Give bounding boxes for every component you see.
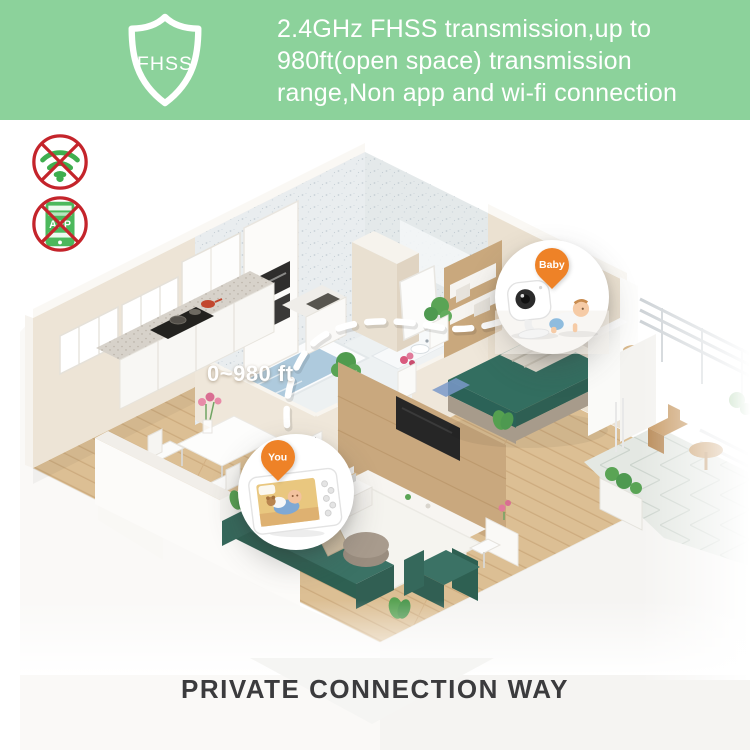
banner-line-2: 980ft(open space) transmission [277,45,677,77]
you-pin-label: You [268,451,287,463]
banner-text: 2.4GHz FHSS transmission,up to 980ft(ope… [277,13,677,109]
banner-line-3: range,Non app and wi-fi connection [277,77,677,109]
distance-label: 0~980 ft [207,361,294,387]
header-banner: FHSS 2.4GHz FHSS transmission,up to 980f… [0,0,750,120]
fhss-shield-icon: FHSS [118,10,212,110]
baby-pin-label: Baby [539,259,565,271]
no-wifi-icon [30,132,90,192]
footer-caption: PRIVATE CONNECTION WAY [0,674,750,705]
shield-label: FHSS [137,53,193,75]
monitor-device [248,468,343,535]
parent-monitor-bubble: You [238,434,354,550]
no-app-icon: APP [30,194,90,254]
baby-camera-bubble: Baby [495,240,609,354]
product-infographic: FHSS 2.4GHz FHSS transmission,up to 980f… [0,0,750,750]
banner-line-1: 2.4GHz FHSS transmission,up to [277,13,677,45]
parent-monitor-photo [238,434,354,550]
